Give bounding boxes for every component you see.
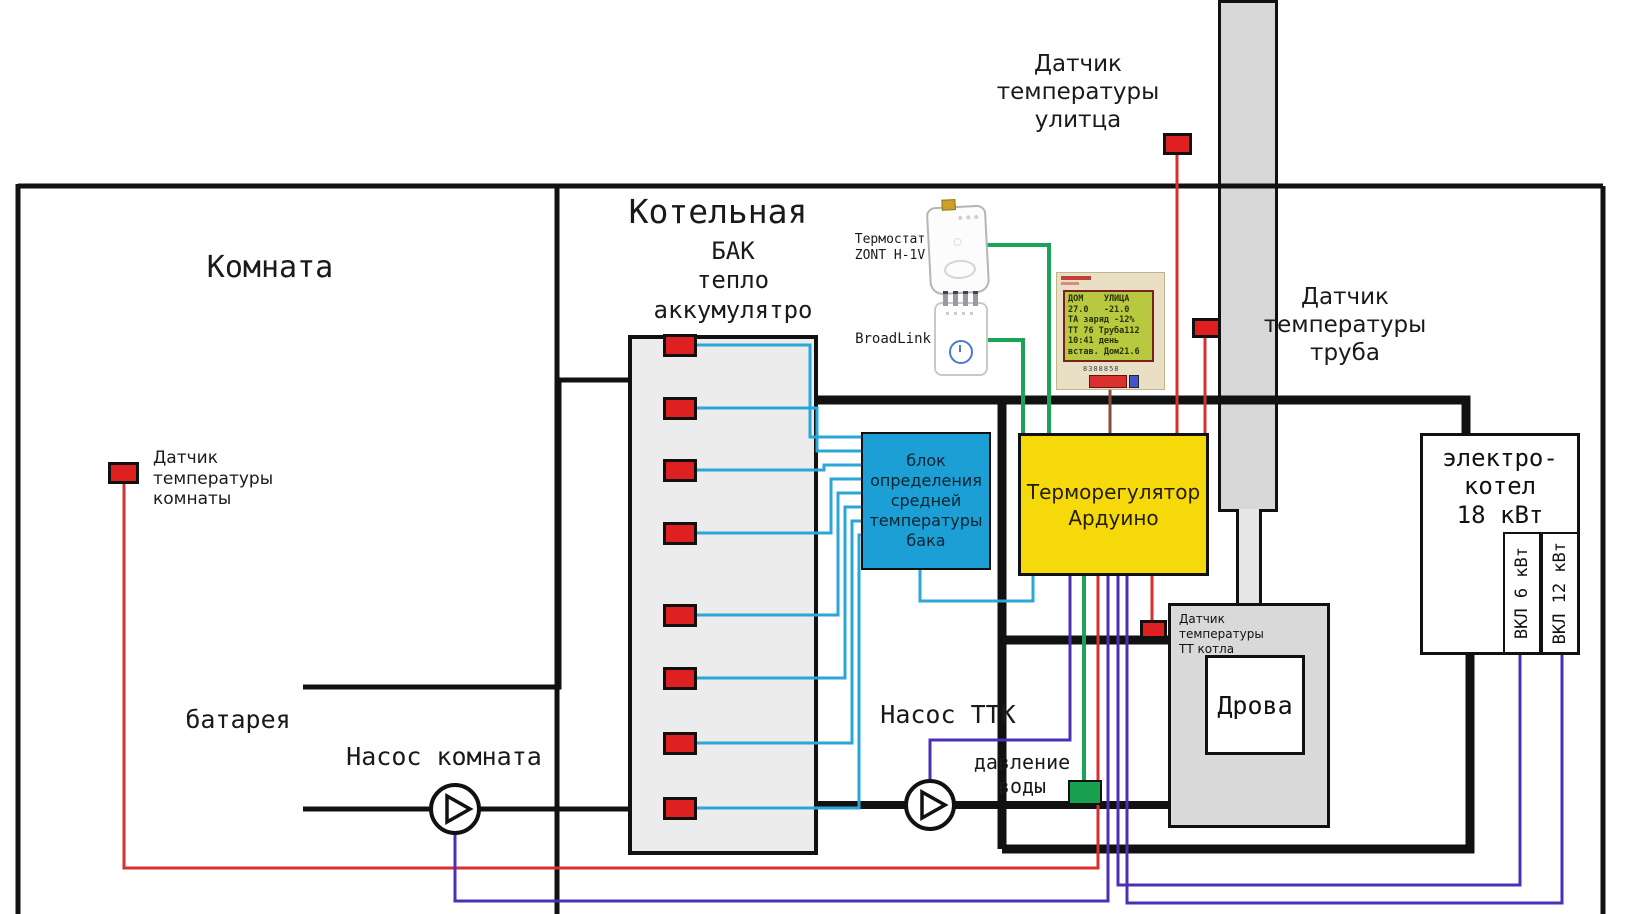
avgblock-to-arduino-wire bbox=[920, 566, 1033, 601]
street-sensor-label: Датчик температуры улитца bbox=[997, 50, 1160, 134]
lcd-line: ДОМ УЛИЦА bbox=[1068, 294, 1152, 305]
zont-label: Термостат ZONT H-1V bbox=[855, 232, 925, 264]
zont-thermostat-device bbox=[926, 204, 991, 295]
broadlink-pin bbox=[963, 291, 968, 306]
pump-ttk bbox=[906, 781, 954, 829]
lcd-line: встав. Дом21.6 bbox=[1068, 347, 1152, 358]
tank-title: БАК тепло аккумулятро bbox=[654, 237, 813, 325]
tank-sensor-wire-4 bbox=[694, 479, 861, 533]
stage-12kw-label: ВКЛ 12 кВт bbox=[1550, 542, 1570, 644]
broadlink-label: BroadLink bbox=[855, 331, 931, 348]
arduino-regulator: Терморегулятор Ардуино bbox=[1018, 433, 1209, 576]
zont-led bbox=[974, 215, 978, 219]
electric-boiler: электро- котел 18 кВт ВКЛ 6 кВт ВКЛ 12 к… bbox=[1420, 433, 1580, 655]
tank-sensor-1 bbox=[663, 334, 697, 357]
broadlink-vents bbox=[946, 312, 974, 315]
lcd-panel: ДОМ УЛИЦА 27.0 -21.0 ТА заряд -12% ТТ 76… bbox=[1056, 272, 1165, 390]
lcd-char-row: 8388858 bbox=[1083, 365, 1120, 373]
tank-sensor-5 bbox=[663, 604, 697, 627]
zont-led bbox=[966, 215, 970, 219]
tank-sensor-6 bbox=[663, 667, 697, 690]
street-temp-sensor bbox=[1163, 133, 1192, 155]
ttk-pump-label: Насос ТТК bbox=[880, 700, 1015, 731]
pipe-room-supply bbox=[303, 380, 628, 687]
firewood-label: Дрова bbox=[1217, 691, 1292, 720]
tank-sensor-2 bbox=[663, 397, 697, 420]
zont-rocker bbox=[944, 259, 977, 280]
room-temp-sensor bbox=[108, 462, 139, 484]
pump-room bbox=[431, 785, 479, 833]
broadlink-device bbox=[934, 302, 988, 376]
lcd-line: 27.0 -21.0 bbox=[1068, 305, 1152, 316]
tt-boiler-temp-sensor bbox=[1140, 620, 1167, 639]
stage-12kw-box: ВКЛ 12 кВт bbox=[1541, 532, 1579, 654]
avg-temp-block-label: блок определения средней температуры бак… bbox=[869, 451, 982, 551]
room-pump-label: Насос комната bbox=[346, 742, 542, 773]
tank-sensor-7 bbox=[663, 732, 697, 755]
lcd-line: ТА заряд -12% bbox=[1068, 315, 1152, 326]
zont-button bbox=[953, 238, 961, 246]
zont-led bbox=[958, 216, 962, 220]
room-sensor-label: Датчик температуры комнаты bbox=[153, 448, 273, 510]
tank-sensor-3 bbox=[663, 459, 697, 482]
lcd-silkscreen-mark bbox=[1061, 276, 1091, 280]
zont-antenna bbox=[941, 199, 956, 211]
lcd-line: 10:41 день bbox=[1068, 336, 1152, 347]
tank-sensor-4 bbox=[663, 522, 697, 545]
pipe-sensor-label: Датчик температуры труба bbox=[1264, 283, 1427, 367]
wood-boiler: Датчик температуры ТТ котла Дрова bbox=[1168, 603, 1330, 828]
broadlink-pin bbox=[953, 291, 958, 306]
stage-6kw-label: ВКЛ 6 кВт bbox=[1512, 547, 1532, 639]
tank-sensor-wire-1 bbox=[694, 345, 861, 437]
broadlink-pin bbox=[943, 291, 948, 306]
broadlink-power-icon bbox=[949, 340, 973, 364]
tank-sensor-8 bbox=[663, 797, 697, 820]
broadlink-pin bbox=[973, 291, 978, 306]
tank-sensor-wire-8 bbox=[694, 535, 861, 808]
radiator-label: батарея bbox=[185, 705, 290, 736]
electric-boiler-title: электро- котел 18 кВт bbox=[1423, 444, 1577, 529]
tank-sensor-wire-5 bbox=[694, 493, 861, 615]
lcd-line: ТТ 76 Труба112 bbox=[1068, 326, 1152, 337]
room-title: Комната bbox=[207, 250, 333, 287]
pipe-tank-to-elecboiler bbox=[818, 400, 1466, 433]
tt-boiler-sensor-label: Датчик температуры ТТ котла bbox=[1179, 612, 1264, 657]
tank-sensor-wire-2 bbox=[694, 408, 861, 451]
lcd-pin-connector-blue bbox=[1129, 375, 1139, 388]
tank-sensor-wire-3 bbox=[694, 465, 861, 470]
tank-sensor-wire-7 bbox=[694, 521, 861, 743]
stage-6kw-box: ВКЛ 6 кВт bbox=[1503, 532, 1541, 654]
water-pressure-sensor bbox=[1068, 780, 1102, 805]
lcd-pin-connector bbox=[1089, 375, 1127, 388]
arduino-regulator-label: Терморегулятор Ардуино bbox=[1027, 479, 1200, 531]
lcd-silkscreen-mark2 bbox=[1061, 282, 1079, 285]
avg-temp-block: блок определения средней температуры бак… bbox=[861, 432, 991, 570]
water-pressure-label: давление воды bbox=[974, 750, 1070, 799]
firewood-chamber: Дрова bbox=[1205, 655, 1305, 755]
pipe-temp-sensor bbox=[1192, 318, 1221, 338]
boiler-room-title: Котельная bbox=[629, 192, 808, 232]
heating-diagram-canvas: { "titles": { "room": "Комната", "boiler… bbox=[0, 0, 1625, 914]
lcd-screen: ДОМ УЛИЦА 27.0 -21.0 ТА заряд -12% ТТ 76… bbox=[1063, 290, 1154, 362]
